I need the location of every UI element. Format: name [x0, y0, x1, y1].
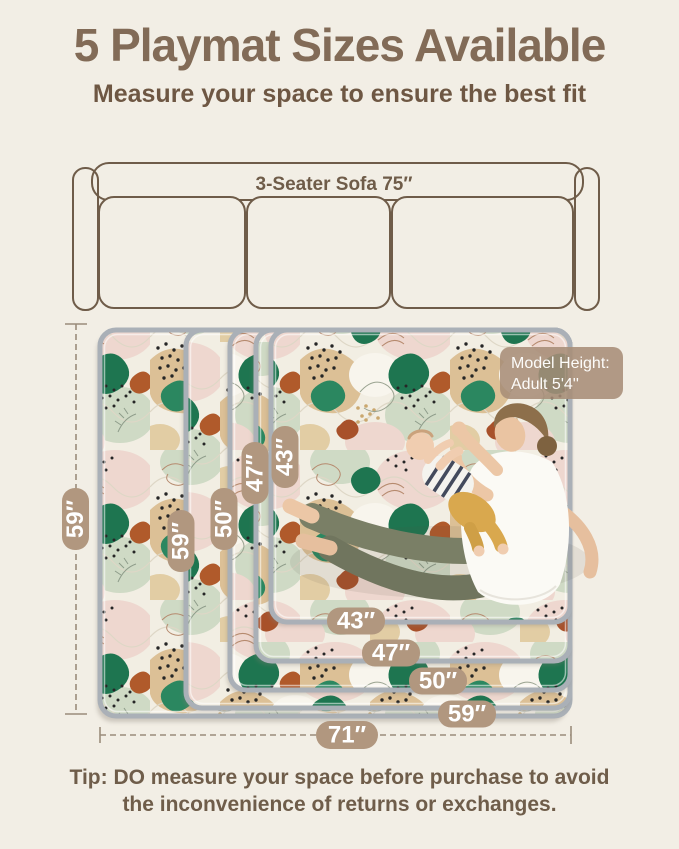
tip-line-2: the inconvenience of returns or exchange…: [122, 793, 556, 816]
badge-mat-height-50: 50″: [211, 488, 238, 550]
sofa-cushion-2: [247, 197, 390, 308]
tip-text: Tip: DO measure your space before purcha…: [0, 764, 679, 819]
sofa-cushion-1: [99, 197, 245, 308]
sofa-armrest-left: [73, 168, 98, 310]
badge-mat-height-59: 59″: [168, 510, 195, 572]
badge-mat-width-43-label: 43″: [337, 608, 376, 635]
badge-mat-height-50-label: 50″: [211, 499, 238, 538]
badge-outer-width-71: 71″: [316, 721, 378, 749]
sofa-label: 3-Seater Sofa 75″: [256, 174, 413, 195]
badge-mat-width-50: 50″: [409, 668, 467, 695]
badge-mat-width-47-label: 47″: [372, 640, 411, 667]
playmat-size-infographic: 5 Playmat Sizes Available Measure your s…: [0, 0, 679, 849]
badge-mat-width-50-label: 50″: [419, 668, 458, 695]
model-height-badge-line1: Model Height:: [511, 355, 610, 372]
tip-line-1: Tip: DO measure your space before purcha…: [70, 766, 610, 789]
sofa-armrest-right: [575, 168, 599, 310]
badge-outer-height-59-label: 59″: [62, 499, 89, 538]
badge-outer-height-59: 59″: [62, 488, 89, 550]
badge-mat-width-47: 47″: [362, 640, 420, 667]
badge-mat-height-59-label: 59″: [168, 521, 195, 560]
badge-mat-height-43: 43″: [272, 426, 299, 488]
model-height-badge-line2: Adult 5'4'': [511, 376, 579, 393]
badge-mat-height-47-label: 47″: [242, 453, 269, 492]
badge-mat-width-59: 59″: [438, 701, 496, 728]
badge-outer-width-71-label: 71″: [328, 722, 367, 749]
badge-mat-width-43: 43″: [327, 608, 385, 635]
badge-mat-height-43-label: 43″: [272, 437, 299, 476]
badge-mat-height-47: 47″: [242, 442, 269, 504]
badge-mat-width-59-label: 59″: [448, 701, 487, 728]
size-diagram: 3-Seater Sofa 75″: [0, 0, 679, 849]
sofa-outline-drawing: 3-Seater Sofa 75″: [73, 163, 599, 310]
sofa-cushion-3: [392, 197, 573, 308]
model-height-badge: Model Height: Adult 5'4'': [500, 347, 623, 399]
